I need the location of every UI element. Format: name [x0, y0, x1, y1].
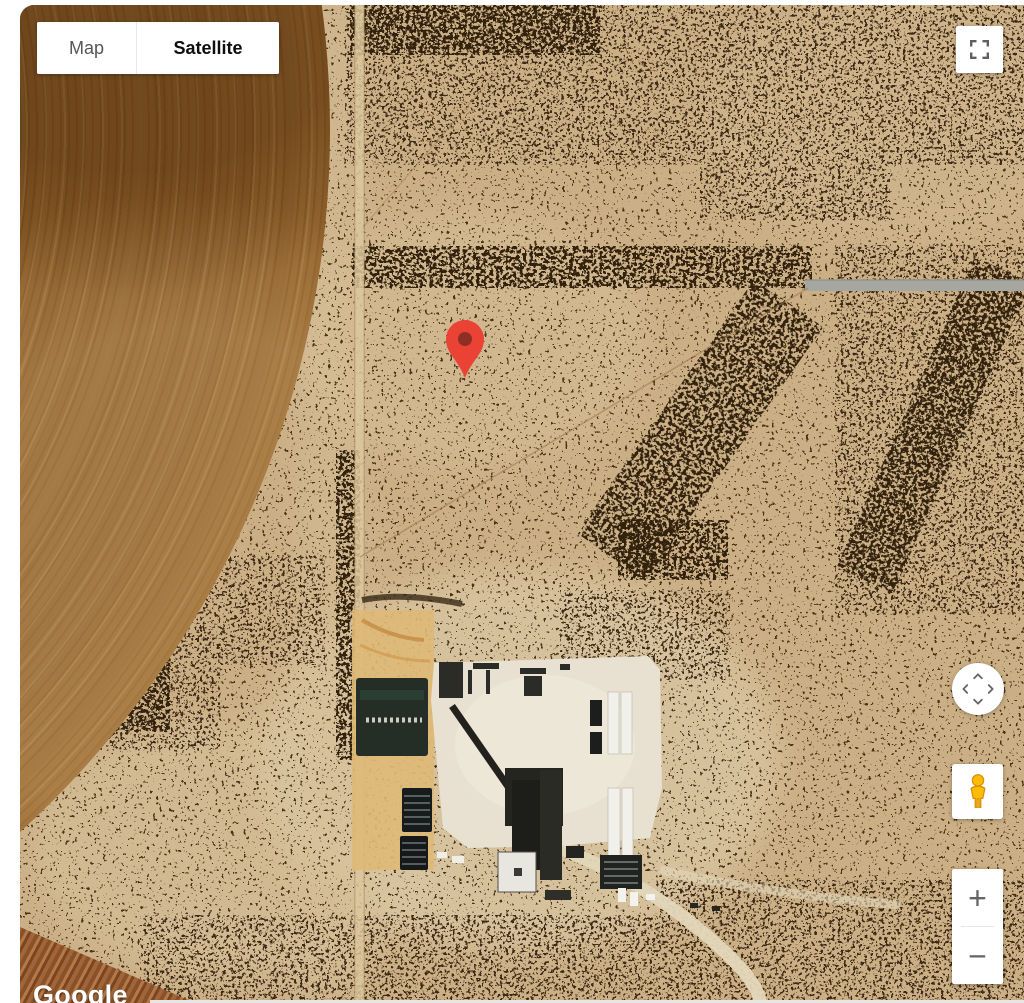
pegman-icon	[965, 774, 991, 810]
zoom-control: + −	[952, 869, 1003, 984]
map-view-button[interactable]: Map	[37, 22, 136, 74]
zoom-out-button[interactable]: −	[952, 927, 1003, 984]
pan-arrows-icon	[958, 663, 998, 715]
fullscreen-button[interactable]	[956, 26, 1003, 73]
location-marker-pin[interactable]	[443, 320, 487, 380]
marker-body	[446, 320, 484, 378]
page-background: Map Satellite	[0, 0, 1024, 1003]
map-type-control: Map Satellite	[37, 22, 279, 74]
google-logo[interactable]: Google	[33, 980, 128, 1003]
pegman-button[interactable]	[952, 764, 1003, 819]
pan-control-button[interactable]	[952, 663, 1004, 715]
marker-inner-dot	[458, 332, 472, 346]
zoom-in-button[interactable]: +	[952, 869, 1003, 926]
satellite-view-button[interactable]: Satellite	[136, 22, 279, 74]
fullscreen-icon	[970, 40, 989, 59]
map-canvas[interactable]: Map Satellite	[20, 5, 1024, 1003]
